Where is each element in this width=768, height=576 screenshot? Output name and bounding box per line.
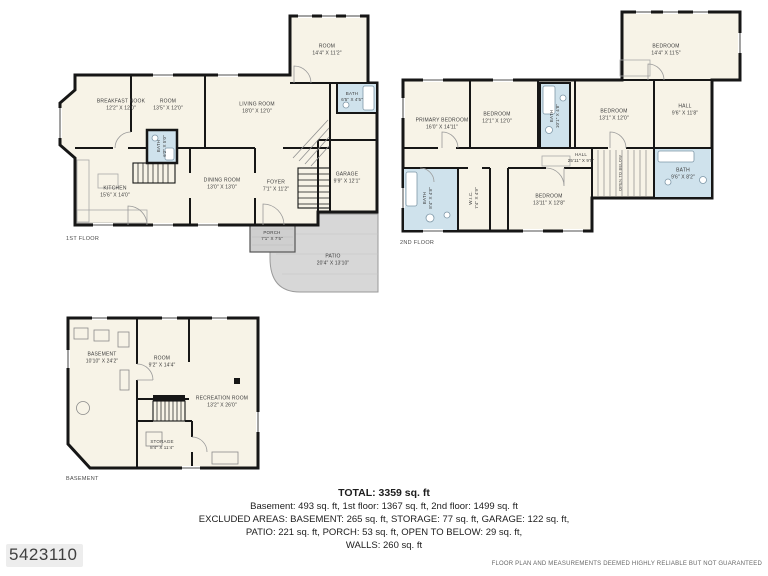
room-label-bath-left: BATH 8'4" X 4'8" [422, 187, 434, 209]
room-label-basement-area: BASEMENT 10'10" X 24'2" [86, 352, 118, 365]
room-label-bedroom-5: BEDROOM 13'11" X 12'8" [533, 194, 565, 207]
room-label-bedroom-2: BEDROOM 12'1" X 12'0" [482, 112, 512, 125]
chimney-marker [234, 378, 240, 384]
room-label-porch: PORCH 7'1" X 7'5" [261, 230, 283, 242]
room-label-kitchen: KITCHEN 15'6" X 14'0" [100, 186, 130, 199]
room-label-foyer: FOYER 7'1" X 11'2" [263, 180, 289, 193]
floor-areas-text: Basement: 493 sq. ft, 1st floor: 1367 sq… [0, 500, 768, 513]
room-label-wic: W.I.C. 7'4" X 4'9" [468, 187, 480, 209]
room-label-bedroom-4: BEDROOM 14'4" X 11'5" [651, 44, 680, 57]
room-label-garage: GARAGE 9'9" X 12'1" [334, 172, 361, 185]
stair-landing [153, 395, 185, 401]
room-label-bath-small: BATH 6'2" X 5'0" [156, 135, 168, 157]
basement-plan: BASEMENT 10'10" X 24'2" ROOM 9'2" X 14'4… [62, 312, 268, 487]
room-label-recreation-room: RECREATION ROOM 13'2" X 26'0" [196, 396, 248, 409]
total-area-text: TOTAL: 3359 sq. ft [0, 487, 768, 500]
room-label-bath-right: BATH 9'6" X 8'2" [671, 168, 695, 181]
area-summary: TOTAL: 3359 sq. ft Basement: 493 sq. ft,… [0, 487, 768, 552]
room-label-bedroom-3: BEDROOM 13'1" X 12'0" [599, 109, 629, 122]
room-label-open-to-below: OPEN TO BELOW [617, 155, 622, 191]
room-label-bath-center: BATH 10'1" X 4'8" [549, 104, 561, 128]
floor-title-first: 1ST FLOOR [66, 236, 99, 242]
room-label-bath-top: BATH 6'5" X 4'5" [341, 91, 363, 103]
room-label-room: ROOM 13'5" X 12'0" [153, 99, 183, 112]
second-floor-plan: PRIMARY BEDROOM 16'0" X 14'11" BEDROOM 1… [398, 8, 746, 252]
disclaimer-text: FLOOR PLAN AND MEASUREMENTS DEEMED HIGHL… [492, 561, 762, 567]
room-label-upper-room: ROOM 14'4" X 11'2" [312, 44, 341, 57]
floor-title-basement: BASEMENT [66, 476, 99, 482]
excluded-areas-text-1: EXCLUDED AREAS: BASEMENT: 265 sq. ft, ST… [0, 513, 768, 526]
room-label-hall-right: HALL 9'6" X 11'8" [672, 104, 698, 117]
listing-id: 5423110 [6, 544, 83, 567]
room-label-breakfast-nook: BREAKFAST NOOK 12'2" X 12'0" [97, 99, 145, 112]
walls-area-text: WALLS: 260 sq. ft [0, 539, 768, 552]
room-label-patio: PATIO 20'4" X 13'10" [317, 254, 349, 267]
room-label-living-room: LIVING ROOM 18'0" X 12'0" [239, 102, 275, 115]
floor-title-second: 2ND FLOOR [400, 240, 434, 246]
first-floor-plan: BREAKFAST NOOK 12'2" X 12'0" ROOM 13'5" … [58, 8, 388, 300]
room-label-storage: STORAGE 8'4" X 11'4" [150, 439, 174, 451]
floor-plan-page: BREAKFAST NOOK 12'2" X 12'0" ROOM 13'5" … [0, 0, 768, 576]
excluded-areas-text-2: PATIO: 221 sq. ft, PORCH: 53 sq. ft, OPE… [0, 526, 768, 539]
room-label-primary-bedroom: PRIMARY BEDROOM 16'0" X 14'11" [416, 118, 469, 131]
room-label-hall-main: HALL 25'11" X 9'5" [568, 152, 594, 164]
room-label-dining-room: DINING ROOM 13'0" X 13'0" [204, 178, 241, 191]
room-label-basement-room: ROOM 9'2" X 14'4" [149, 356, 176, 369]
